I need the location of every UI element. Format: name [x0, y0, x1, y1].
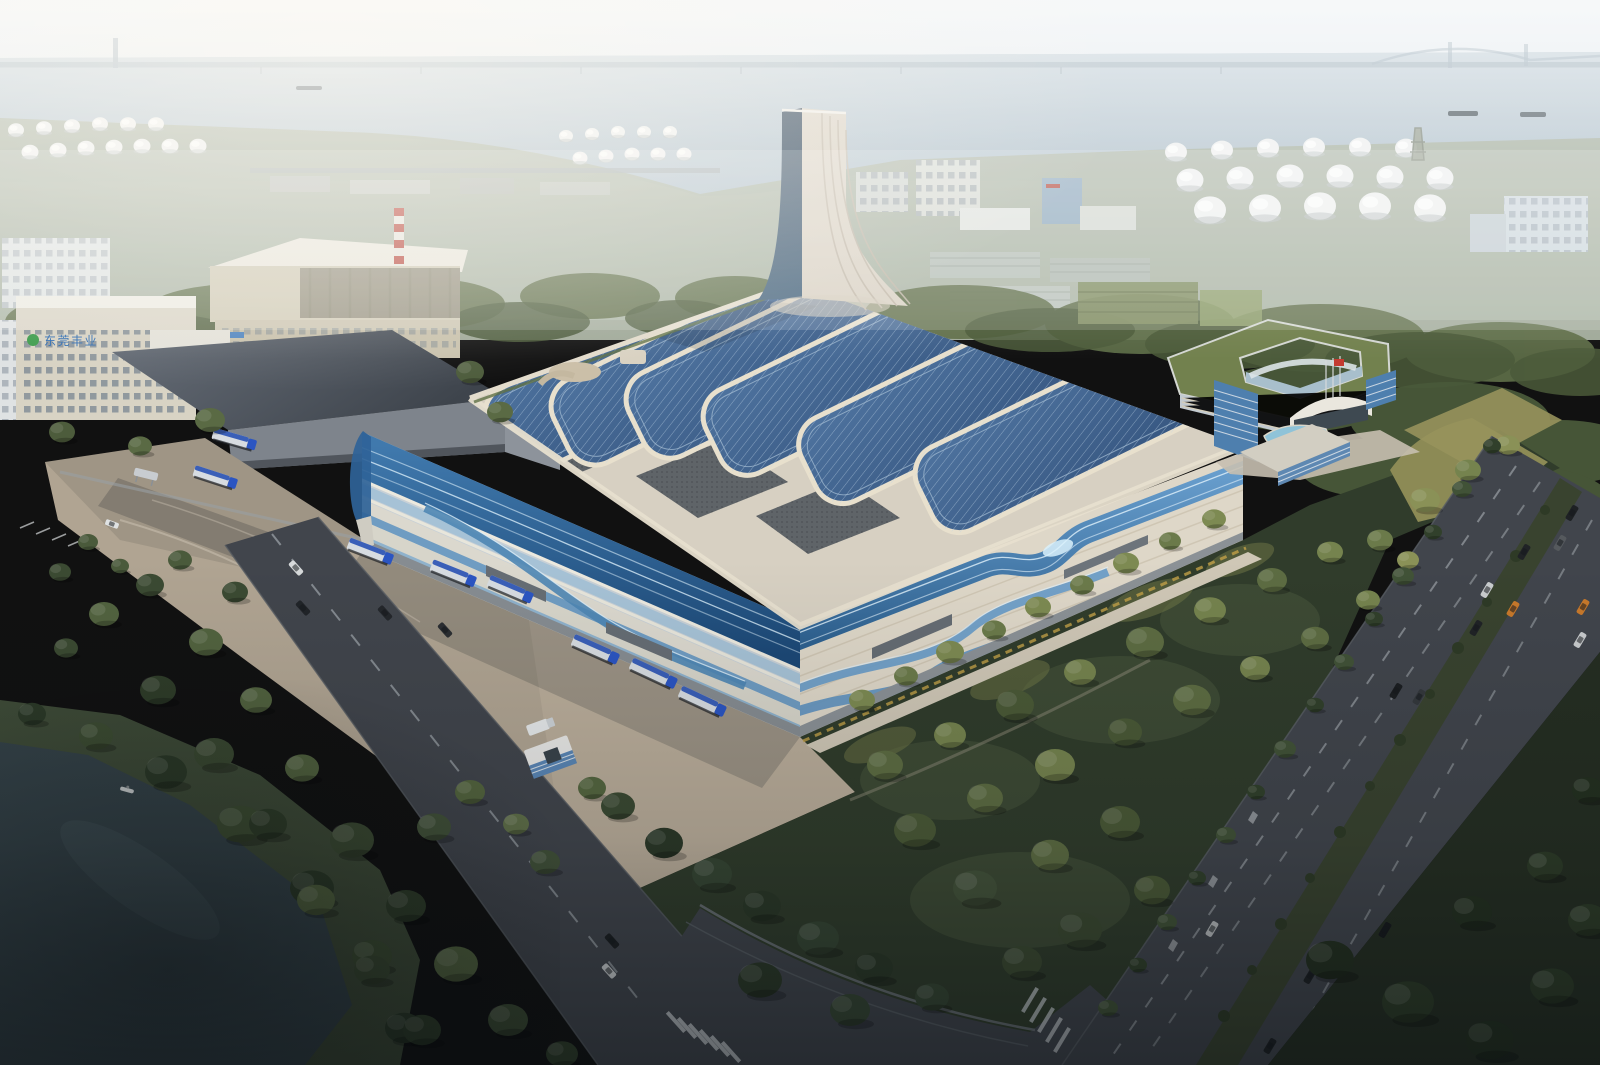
red-flag — [1334, 359, 1344, 366]
architectural-rendering: 东莞丰业 — [0, 0, 1600, 1065]
